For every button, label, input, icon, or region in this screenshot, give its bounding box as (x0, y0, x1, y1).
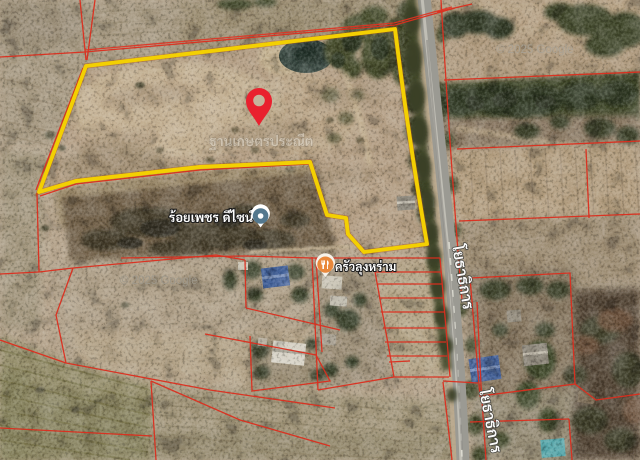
svg-text:© 2025 Google: © 2025 Google (120, 275, 198, 287)
svg-text:© 2025 Google: © 2025 Google (496, 44, 574, 56)
